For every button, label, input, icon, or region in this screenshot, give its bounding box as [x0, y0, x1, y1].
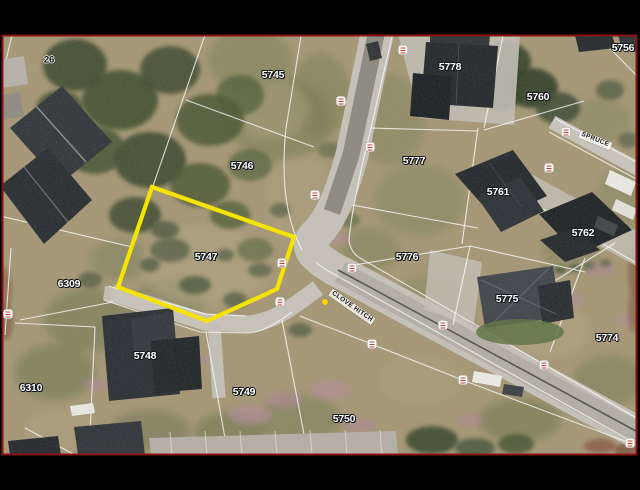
- aerial-map-screenshot: 2657455746574763096310574857495750577657…: [0, 0, 640, 490]
- map-scene: [0, 0, 640, 490]
- aerial-imagery: [0, 28, 640, 462]
- photo-grain: [2, 35, 637, 455]
